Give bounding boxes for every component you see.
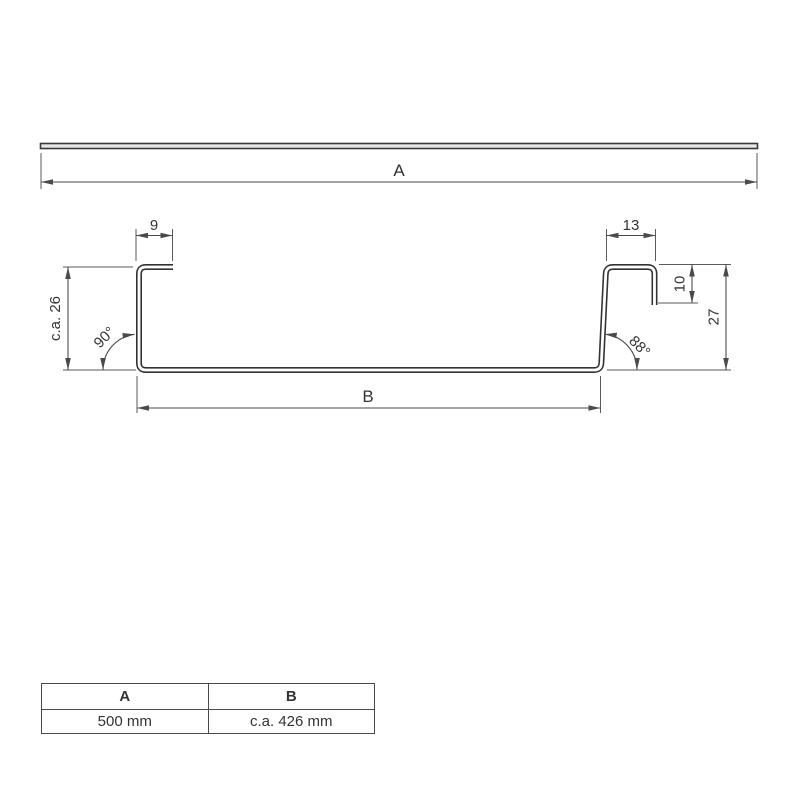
table-header-a: A [42,684,209,710]
dimension-table: A B 500 mm c.a. 426 mm [41,683,375,734]
dim-13-label: 13 [623,217,640,234]
profile-cross-section: 9 13 c.a. 26 90° [47,217,731,413]
angle-88-label: 88° [625,333,653,361]
dim-ca26: c.a. 26 [47,267,136,370]
dim-9-label: 9 [150,217,158,234]
dim-10-label: 10 [671,276,688,293]
dim-13: 13 [607,217,656,261]
dim-ca26-label: c.a. 26 [47,296,64,341]
drawing-page: A 9 13 [0,0,800,800]
dim-27: 27 [607,265,731,371]
table-header-row: A B [42,684,375,710]
dim-a-label: A [393,161,405,180]
profile-outline-core [139,267,655,370]
dim-b-label: B [362,387,373,406]
table-value-a: 500 mm [42,710,209,734]
table-value-row: 500 mm c.a. 426 mm [42,710,375,734]
table-value-b: c.a. 426 mm [208,710,375,734]
dim-a: A [41,153,757,189]
angle-90-label: 90° [91,324,119,352]
angle-90: 90° [91,324,135,370]
flat-sheet [41,144,758,149]
flat-sheet-top-view: A [41,144,758,190]
angle-88: 88° [605,333,654,370]
table-header-b: B [208,684,375,710]
dim-b: B [137,376,601,413]
dim-27-label: 27 [705,309,722,326]
technical-drawing: A 9 13 [0,0,800,800]
dim-10: 10 [658,265,731,304]
profile-outline [139,267,655,370]
dim-9: 9 [136,217,173,261]
